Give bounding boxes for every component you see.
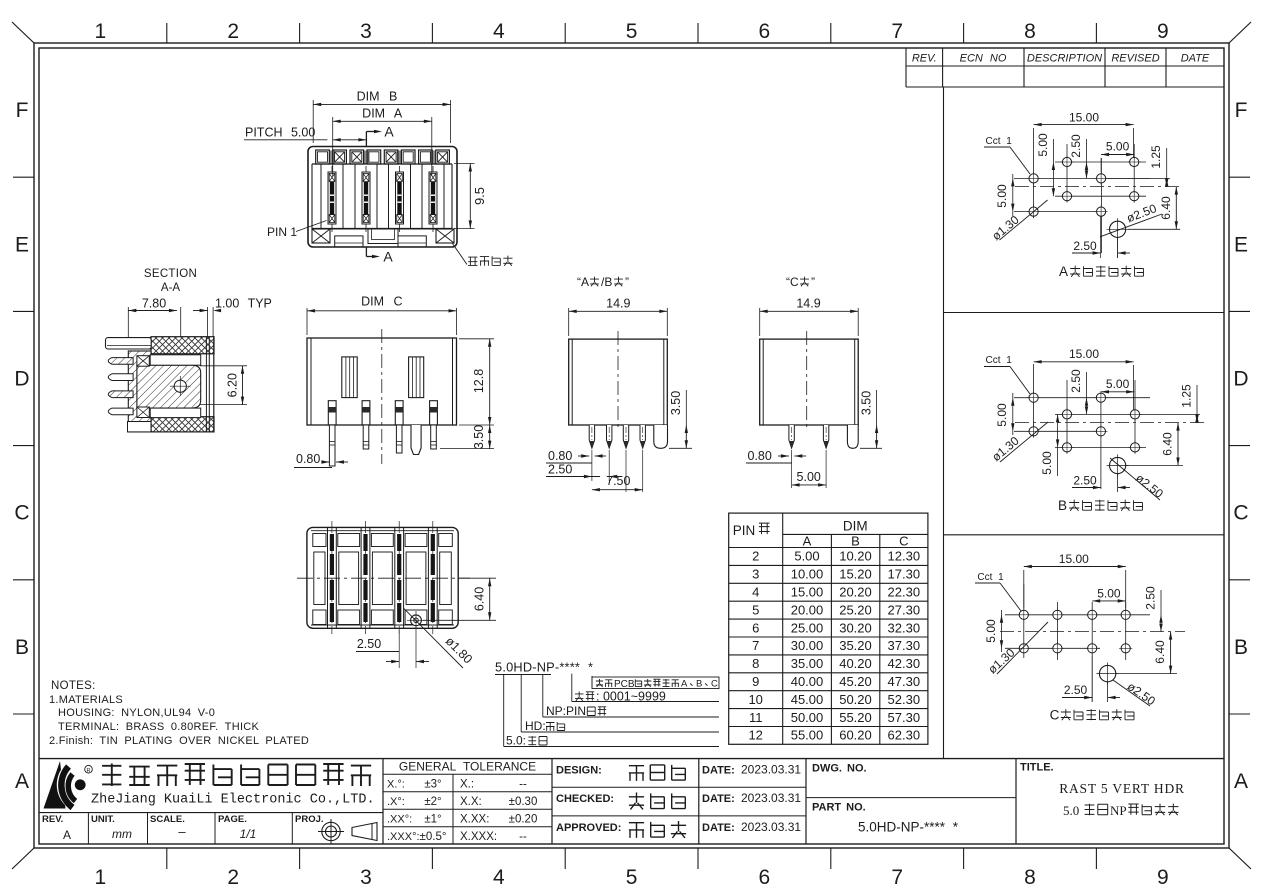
svg-text:45.00: 45.00 xyxy=(791,692,824,707)
svg-text:HOUSING: NYLON,UL94 V-0: HOUSING: NYLON,UL94 V-0 xyxy=(58,707,215,719)
svg-text:PART NO.: PART NO. xyxy=(812,802,866,814)
svg-text:0.80: 0.80 xyxy=(748,449,772,463)
svg-text:14.9: 14.9 xyxy=(796,297,820,311)
svg-text:22.30: 22.30 xyxy=(888,585,921,600)
svg-text:A: A xyxy=(15,770,29,793)
svg-text:SECTION: SECTION xyxy=(144,268,197,280)
svg-text:.X°:: .X°: xyxy=(387,796,405,808)
svg-text:GENERAL TOLERANCE: GENERAL TOLERANCE xyxy=(399,760,536,774)
svg-text:12.8: 12.8 xyxy=(472,369,486,393)
svg-text:1: 1 xyxy=(95,20,107,43)
svg-text:0.80: 0.80 xyxy=(296,452,320,466)
svg-text:C: C xyxy=(711,679,718,690)
svg-text:5.00: 5.00 xyxy=(1097,587,1121,601)
svg-text:2023.03.31: 2023.03.31 xyxy=(741,763,801,777)
svg-text:*: * xyxy=(588,660,593,675)
svg-text:14.9: 14.9 xyxy=(606,297,630,311)
svg-text:A: A xyxy=(383,249,393,265)
svg-text:6.20: 6.20 xyxy=(226,373,240,397)
svg-text:E: E xyxy=(1234,233,1248,256)
svg-text:7.50: 7.50 xyxy=(606,474,630,488)
svg-text:2023.03.31: 2023.03.31 xyxy=(741,791,801,805)
svg-text:--: -- xyxy=(519,831,527,843)
svg-text:9: 9 xyxy=(1157,20,1169,43)
svg-text:6: 6 xyxy=(759,20,771,43)
svg-text:1: 1 xyxy=(95,866,107,889)
svg-text:2: 2 xyxy=(227,20,239,43)
svg-text:B: B xyxy=(1058,498,1067,513)
svg-text:F: F xyxy=(16,99,29,122)
svg-text:2.50: 2.50 xyxy=(1073,474,1097,488)
svg-text:”: ” xyxy=(625,275,629,289)
svg-text:6: 6 xyxy=(752,620,759,635)
svg-text:A: A xyxy=(63,828,71,842)
svg-text:6.40: 6.40 xyxy=(1159,196,1173,220)
svg-text:Cct 1: Cct 1 xyxy=(977,572,1004,583)
svg-text:REV.: REV. xyxy=(42,814,63,825)
svg-text:55.20: 55.20 xyxy=(839,710,872,725)
svg-text:15.00: 15.00 xyxy=(791,585,824,600)
svg-text:NP: NP xyxy=(1110,803,1127,818)
svg-text:3.50: 3.50 xyxy=(472,425,486,449)
svg-text:DIM C: DIM C xyxy=(361,295,402,309)
svg-text:7.80: 7.80 xyxy=(142,297,166,311)
svg-text:2.Finish: TIN PLATING OVER: 2.Finish: TIN PLATING OVER NICKEL PLATED xyxy=(49,735,309,747)
svg-text:15.00: 15.00 xyxy=(1069,347,1099,361)
svg-text:6: 6 xyxy=(759,866,771,889)
svg-text:15.00: 15.00 xyxy=(1069,111,1099,125)
svg-text:5.00: 5.00 xyxy=(995,184,1009,208)
svg-text:–: – xyxy=(178,824,186,839)
svg-text:11: 11 xyxy=(749,710,763,725)
svg-text:1/1: 1/1 xyxy=(240,827,257,841)
svg-text:APPROVED:: APPROVED: xyxy=(556,822,621,834)
svg-text:3: 3 xyxy=(360,866,372,889)
svg-text:3: 3 xyxy=(360,20,372,43)
svg-text:.XX°:: .XX°: xyxy=(387,814,412,826)
svg-text:57.30: 57.30 xyxy=(888,710,921,725)
svg-text:5.00: 5.00 xyxy=(1040,451,1054,475)
svg-text:20.00: 20.00 xyxy=(791,602,824,617)
svg-text:12.30: 12.30 xyxy=(888,549,921,564)
svg-text:B: B xyxy=(1234,636,1248,659)
svg-text:TITLE.: TITLE. xyxy=(1020,762,1054,774)
svg-text:A: A xyxy=(384,124,394,140)
svg-text:RAST 5 VERT HDR: RAST 5 VERT HDR xyxy=(1059,781,1185,796)
svg-text:DIM B: DIM B xyxy=(357,90,398,104)
svg-text:±1°: ±1° xyxy=(424,814,441,826)
svg-text:HD:: HD: xyxy=(525,719,546,733)
svg-text:DATE:: DATE: xyxy=(702,822,735,834)
svg-text:50.00: 50.00 xyxy=(791,710,824,725)
svg-text:B: B xyxy=(696,679,702,690)
svg-text:2.50: 2.50 xyxy=(1069,369,1083,393)
svg-text:40.00: 40.00 xyxy=(791,674,824,689)
svg-text:3.50: 3.50 xyxy=(669,391,683,415)
svg-text:2.50: 2.50 xyxy=(548,463,572,477)
svg-text:37.30: 37.30 xyxy=(888,638,921,653)
svg-text:DWG. NO.: DWG. NO. xyxy=(812,763,867,775)
svg-text:62.30: 62.30 xyxy=(888,728,921,743)
svg-text:15.00: 15.00 xyxy=(1059,552,1089,566)
svg-text:27.30: 27.30 xyxy=(888,602,921,617)
svg-text:B: B xyxy=(15,636,29,659)
svg-text:X.:: X.: xyxy=(460,779,474,791)
svg-text:5.00: 5.00 xyxy=(1106,140,1130,154)
svg-text:60.20: 60.20 xyxy=(839,728,872,743)
svg-text:Cct 1: Cct 1 xyxy=(986,136,1013,147)
svg-text:1.00 TYP: 1.00 TYP xyxy=(215,297,272,311)
svg-text:A-A: A-A xyxy=(161,282,181,294)
svg-text:5.00: 5.00 xyxy=(797,470,821,484)
svg-text:±0.20: ±0.20 xyxy=(509,814,538,826)
svg-text:NOTES:: NOTES: xyxy=(51,680,96,692)
svg-text:PIN: PIN xyxy=(733,523,756,538)
svg-text:35.20: 35.20 xyxy=(839,638,872,653)
svg-text:5.0: 5.0 xyxy=(1063,803,1079,818)
svg-text:17.30: 17.30 xyxy=(888,567,921,582)
svg-text:1.25: 1.25 xyxy=(1180,384,1194,408)
svg-text:F: F xyxy=(1235,99,1248,122)
svg-text:12: 12 xyxy=(748,728,762,743)
svg-text:5.00: 5.00 xyxy=(1106,377,1130,391)
svg-text:PAGE.: PAGE. xyxy=(218,814,247,825)
svg-text:1.MATERIALS: 1.MATERIALS xyxy=(49,694,123,706)
svg-text:6.40: 6.40 xyxy=(1153,640,1167,664)
svg-text:50.20: 50.20 xyxy=(839,692,872,707)
svg-text:30.00: 30.00 xyxy=(791,638,824,653)
svg-text:5: 5 xyxy=(626,866,638,889)
svg-text:±0.30: ±0.30 xyxy=(509,796,538,808)
svg-text:20.20: 20.20 xyxy=(839,585,872,600)
svg-text:B: B xyxy=(851,534,860,549)
svg-text:REV.: REV. xyxy=(912,53,937,65)
svg-text:4: 4 xyxy=(493,20,505,43)
svg-text:ECN NO: ECN NO xyxy=(960,53,1007,65)
svg-text:/B: /B xyxy=(601,275,612,289)
svg-text:D: D xyxy=(1233,368,1248,391)
svg-text:2023.03.31: 2023.03.31 xyxy=(741,820,801,834)
svg-text:±0.5°: ±0.5° xyxy=(420,831,447,843)
svg-text:“A: “A xyxy=(577,275,589,289)
svg-text:10.00: 10.00 xyxy=(791,567,824,582)
svg-text:5.00: 5.00 xyxy=(794,549,819,564)
svg-text:DESIGN:: DESIGN: xyxy=(556,765,602,777)
svg-text:2.50: 2.50 xyxy=(1073,239,1097,253)
svg-text:1.25: 1.25 xyxy=(1149,145,1163,169)
svg-text:2.50: 2.50 xyxy=(1064,683,1088,697)
svg-text:X.X:: X.X: xyxy=(460,796,482,808)
svg-text:47.30: 47.30 xyxy=(888,674,921,689)
svg-text:0.80: 0.80 xyxy=(548,449,572,463)
svg-text:A: A xyxy=(1234,770,1248,793)
svg-text:DATE:: DATE: xyxy=(702,793,735,805)
svg-text:3.50: 3.50 xyxy=(859,391,873,415)
svg-text:5.0HD-NP-****: 5.0HD-NP-**** xyxy=(495,660,580,675)
svg-text:PROJ.: PROJ. xyxy=(295,814,324,825)
svg-text:PIN 1: PIN 1 xyxy=(267,225,297,239)
svg-text:42.30: 42.30 xyxy=(888,656,921,671)
svg-text:5.00: 5.00 xyxy=(995,403,1009,427)
svg-text:DIM A: DIM A xyxy=(362,107,403,121)
svg-text:6.40: 6.40 xyxy=(1161,432,1175,456)
svg-text:5: 5 xyxy=(752,602,759,617)
svg-text:40.20: 40.20 xyxy=(839,656,872,671)
svg-text:DESCRIPTION: DESCRIPTION xyxy=(1027,53,1102,65)
svg-text:8: 8 xyxy=(752,656,759,671)
svg-text:CHECKED:: CHECKED: xyxy=(556,793,614,805)
svg-text:.XXX°:: .XXX°: xyxy=(387,831,420,843)
svg-text:±2°: ±2° xyxy=(424,796,441,808)
svg-text:E: E xyxy=(15,233,29,256)
svg-text:7: 7 xyxy=(891,20,903,43)
svg-text:9: 9 xyxy=(752,674,759,689)
svg-text:C: C xyxy=(14,502,29,525)
svg-text:A: A xyxy=(1059,264,1068,279)
svg-text:5.0HD-NP-**** *: 5.0HD-NP-**** * xyxy=(858,820,959,835)
svg-text:X.°:: X.°: xyxy=(387,779,405,791)
svg-text:DATE: DATE xyxy=(1181,53,1210,65)
svg-text:9.5: 9.5 xyxy=(472,187,487,205)
svg-text:25.00: 25.00 xyxy=(791,620,824,635)
svg-text:UNIT.: UNIT. xyxy=(91,814,115,825)
svg-text:D: D xyxy=(14,368,29,391)
svg-text:45.20: 45.20 xyxy=(839,674,872,689)
svg-text:2: 2 xyxy=(227,866,239,889)
svg-text:C: C xyxy=(1233,502,1248,525)
svg-text:25.20: 25.20 xyxy=(839,602,872,617)
svg-text:32.30: 32.30 xyxy=(888,620,921,635)
svg-text:--: -- xyxy=(519,779,527,791)
svg-text:”: ” xyxy=(811,275,815,289)
svg-text:A: A xyxy=(681,679,688,690)
svg-text:“C: “C xyxy=(786,275,799,289)
svg-text:3: 3 xyxy=(752,567,759,582)
svg-text:R: R xyxy=(87,768,91,774)
svg-text:5.00: 5.00 xyxy=(984,619,998,643)
svg-text:15.20: 15.20 xyxy=(839,567,872,582)
svg-text:2.50: 2.50 xyxy=(1144,586,1158,610)
svg-text:ZheJiang KuaiLi Electronic Co.: ZheJiang KuaiLi Electronic Co.,LTD. xyxy=(91,793,375,808)
svg-text:DATE:: DATE: xyxy=(702,765,735,777)
svg-text:5: 5 xyxy=(626,20,638,43)
svg-text:DIM: DIM xyxy=(843,519,868,534)
svg-text:5.00: 5.00 xyxy=(1036,133,1050,157)
svg-text:9: 9 xyxy=(1157,866,1169,889)
svg-text:X.XXX:: X.XXX: xyxy=(460,831,497,843)
svg-text:55.00: 55.00 xyxy=(791,728,824,743)
svg-text:C: C xyxy=(1050,708,1060,723)
svg-text:C: C xyxy=(899,534,908,549)
svg-text:8: 8 xyxy=(1024,20,1036,43)
svg-text:7: 7 xyxy=(752,638,759,653)
svg-text:PITCH 5.00: PITCH 5.00 xyxy=(245,126,315,140)
svg-text:10.20: 10.20 xyxy=(839,549,872,564)
svg-text:NP:PIN: NP:PIN xyxy=(546,704,586,718)
svg-text:5.0:: 5.0: xyxy=(506,734,526,748)
svg-text:52.30: 52.30 xyxy=(888,692,921,707)
svg-text:4: 4 xyxy=(493,866,505,889)
svg-text:TERMINAL: BRASS 0.80REF. TH: TERMINAL: BRASS 0.80REF. THICK xyxy=(58,721,260,733)
svg-text:PCB: PCB xyxy=(614,679,635,690)
svg-text:7: 7 xyxy=(891,866,903,889)
svg-text:8: 8 xyxy=(1024,866,1036,889)
svg-text:mm: mm xyxy=(112,827,132,841)
svg-text:Cct 1: Cct 1 xyxy=(986,355,1013,366)
svg-text:10: 10 xyxy=(748,692,762,707)
svg-text:±3°: ±3° xyxy=(424,779,441,791)
svg-text:REVISED: REVISED xyxy=(1111,53,1159,65)
svg-text:2.50: 2.50 xyxy=(357,637,381,651)
svg-text:2.50: 2.50 xyxy=(1069,134,1083,158)
svg-text:35.00: 35.00 xyxy=(791,656,824,671)
svg-text:A: A xyxy=(803,534,812,549)
svg-text:6.40: 6.40 xyxy=(473,587,487,611)
svg-text:30.20: 30.20 xyxy=(839,620,872,635)
svg-text:4: 4 xyxy=(752,585,759,600)
svg-text:2: 2 xyxy=(752,549,759,564)
svg-text:X.XX:: X.XX: xyxy=(460,814,489,826)
